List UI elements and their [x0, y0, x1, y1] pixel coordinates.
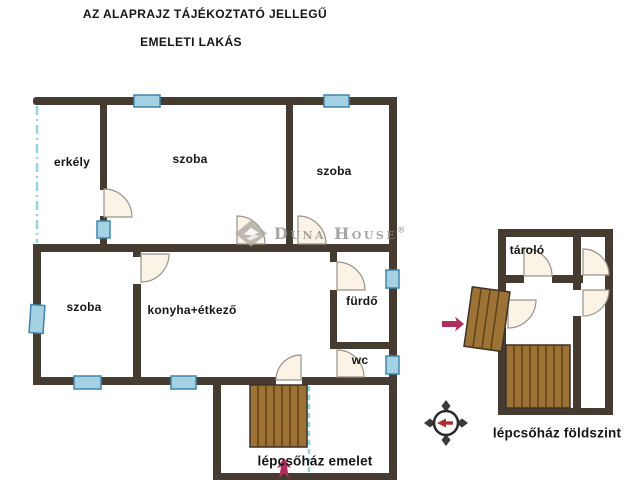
room-label-room-top-right: szoba — [316, 164, 351, 178]
room-label-toilet: wc — [352, 353, 368, 367]
room-label-balcony: erkély — [54, 155, 90, 169]
ground-outside-stairs — [464, 287, 510, 352]
page-subtitle: EMELETI LAKÁS — [140, 35, 242, 49]
upper-staircase — [250, 385, 307, 447]
floorplan-canvas — [0, 0, 640, 480]
ground-floor-doors — [508, 248, 609, 328]
upper-floor-doors — [104, 189, 365, 380]
compass-icon — [424, 400, 468, 446]
ground-staircase — [506, 345, 570, 408]
room-label-bathroom: fürdő — [346, 294, 378, 308]
room-label-room-bottom-left: szoba — [66, 300, 101, 314]
page-title: AZ ALAPRAJZ TÁJÉKOZTATÓ JELLEGŰ — [83, 7, 327, 21]
room-label-kitchen-dining: konyha+étkező — [148, 303, 237, 317]
entrance-arrow-right-icon — [442, 317, 464, 332]
label-staircase-upper: lépcsőház emelet — [258, 454, 373, 469]
label-staircase-ground: lépcsőház földszint — [493, 426, 621, 441]
room-label-room-top-middle: szoba — [172, 152, 207, 166]
room-label-storage: tároló — [510, 243, 545, 257]
floorplan-page: AZ ALAPRAJZ TÁJÉKOZTATÓ JELLEGŰ EMELETI … — [0, 0, 640, 480]
